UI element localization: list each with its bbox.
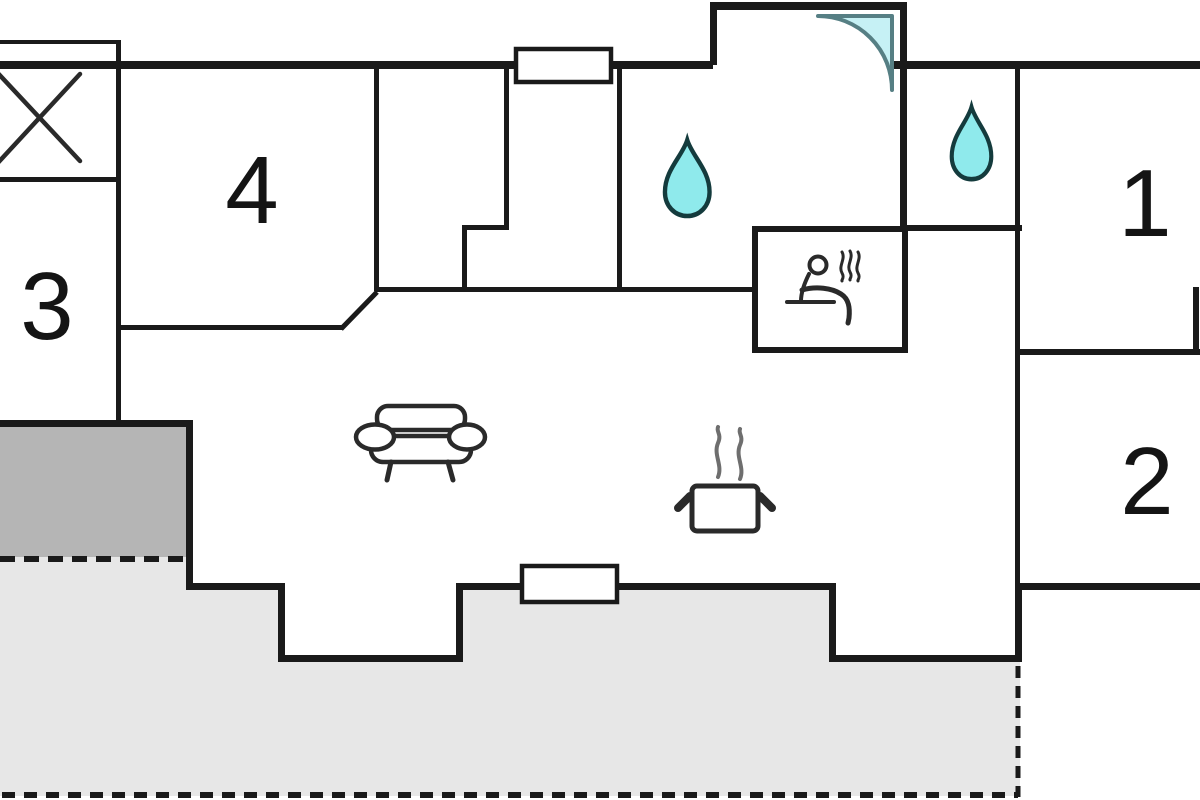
floor-plan: 1 2 3 4 [0,0,1200,800]
floor-plan-canvas: 1 2 3 4 [0,0,1200,800]
shower-corner-icon [818,16,892,90]
terrace-covered [0,425,190,557]
water-drop-icon-toilet [952,107,992,179]
water-drop-icon-bathroom [665,140,710,216]
cross-box-icon [0,69,80,167]
cooking-pot-icon [678,427,772,531]
room-2-label: 2 [1120,428,1173,535]
terrace-open [0,556,1020,796]
room-4-label: 4 [225,137,278,244]
sofa-icon [356,406,485,480]
window-top [516,49,611,82]
room-1-label: 1 [1118,150,1171,257]
room-3-label: 3 [20,253,73,360]
room-4-chamfer-wall [341,292,377,329]
window-bottom [522,566,617,602]
